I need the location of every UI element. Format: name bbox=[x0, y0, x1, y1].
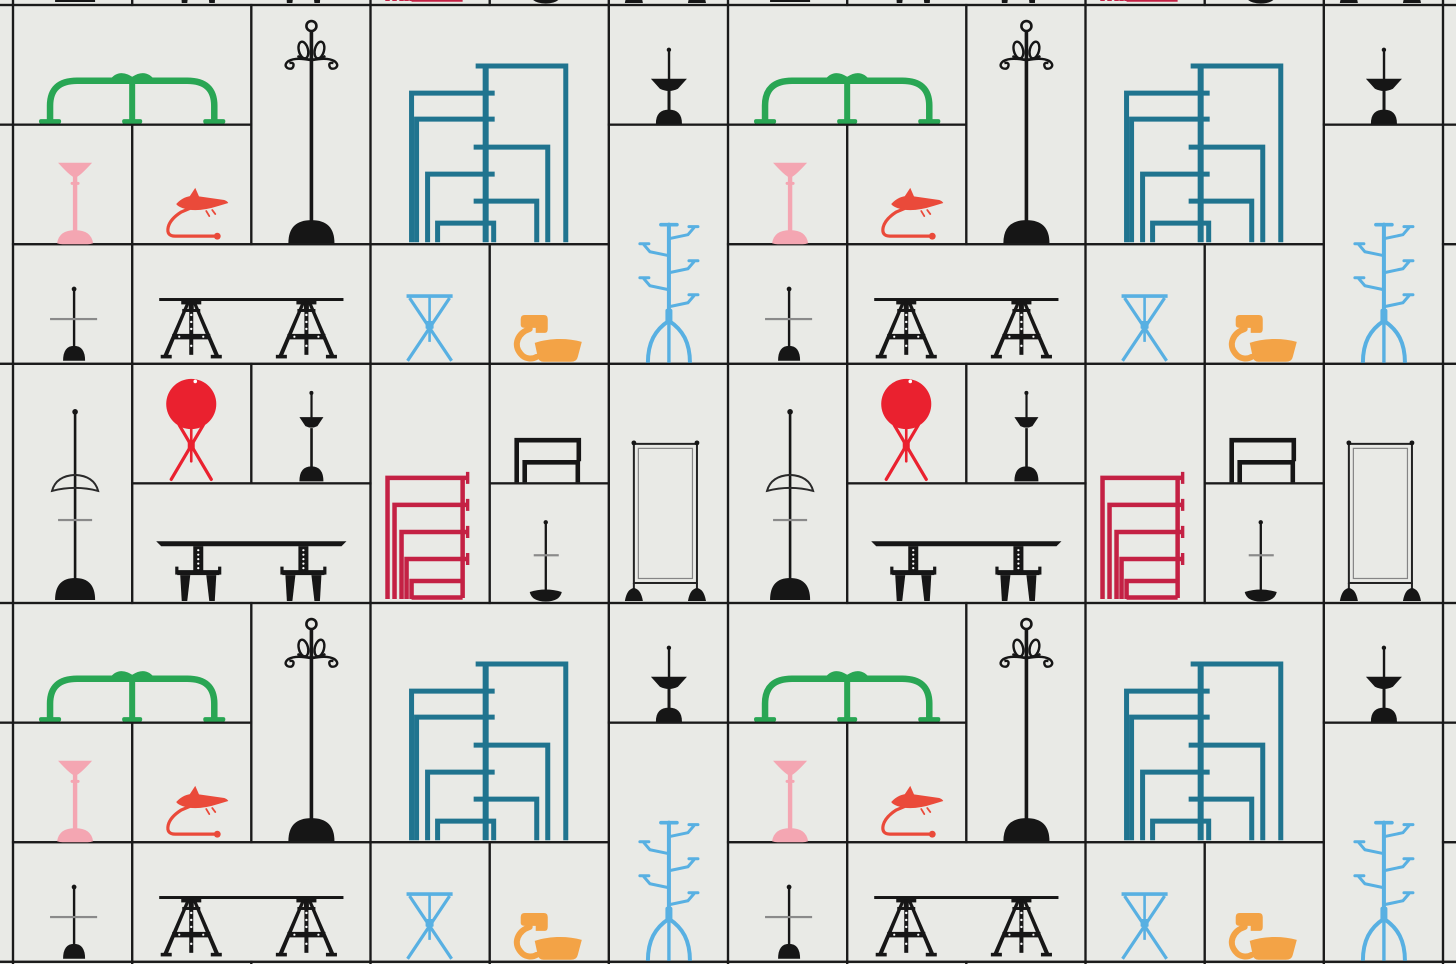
arch-console-cell bbox=[1443, 5, 1456, 125]
furniture-pattern-svg bbox=[0, 0, 1456, 964]
dining-table bbox=[156, 0, 346, 3]
dining-table bbox=[871, 541, 1061, 601]
shelving-tall-cell bbox=[1086, 5, 1324, 244]
arch-console bbox=[39, 671, 225, 722]
side-table-x bbox=[407, 296, 453, 361]
cross-floor-lamp-cell bbox=[728, 244, 847, 364]
shelving-tall bbox=[1127, 66, 1281, 242]
shelving-small bbox=[388, 472, 468, 599]
valet-stand bbox=[767, 0, 813, 2]
cross-lamp-bowl bbox=[1245, 520, 1277, 601]
shelving-tall-cell bbox=[371, 603, 609, 842]
cross-floor-lamp-cell bbox=[728, 842, 847, 962]
dining-table bbox=[871, 0, 1061, 3]
trestle-table bbox=[159, 298, 343, 358]
cross-floor-lamp bbox=[765, 287, 812, 361]
table-lamp-a bbox=[1366, 48, 1402, 124]
valet-stand bbox=[767, 409, 813, 600]
mirror-floor bbox=[1340, 0, 1421, 3]
table-lamp-a-cell bbox=[0, 603, 13, 723]
side-table-x bbox=[1122, 296, 1168, 361]
shelving-tall bbox=[412, 664, 566, 840]
floor-lamp-pink bbox=[57, 163, 93, 246]
desk-lamp-coral-cell bbox=[132, 723, 251, 843]
table-lamp-b bbox=[299, 391, 323, 481]
cross-floor-lamp bbox=[50, 885, 97, 959]
cross-floor-lamp-cell bbox=[13, 244, 132, 364]
cross-lamp-bowl-cell bbox=[1205, 483, 1324, 603]
table-lamp-b bbox=[1014, 391, 1038, 481]
arch-console bbox=[754, 73, 940, 124]
trestle-table bbox=[159, 896, 343, 956]
mirror-floor bbox=[625, 0, 706, 3]
desk-lamp-coral-cell bbox=[847, 125, 966, 245]
furniture-pattern-canvas bbox=[0, 0, 1456, 964]
trestle-table bbox=[874, 896, 1058, 956]
nesting-bench bbox=[517, 440, 579, 482]
desk-lamp-coral bbox=[883, 786, 943, 838]
nesting-bench bbox=[1232, 440, 1294, 482]
arch-console bbox=[39, 73, 225, 124]
cross-floor-lamp-cell bbox=[1443, 842, 1456, 962]
desk-lamp-coral bbox=[883, 188, 943, 240]
cross-lamp-bowl bbox=[530, 520, 562, 601]
coat-stand bbox=[286, 619, 338, 841]
coat-tree-blue bbox=[1355, 225, 1413, 363]
valet-stand-cell bbox=[1443, 364, 1456, 603]
cross-floor-lamp bbox=[765, 885, 812, 959]
valet-stand-cell bbox=[13, 364, 132, 603]
nesting-bench-cell bbox=[1205, 364, 1324, 484]
coat-stand bbox=[286, 21, 338, 243]
ball-lamp-red bbox=[881, 379, 931, 480]
table-lamp-a bbox=[1366, 646, 1402, 722]
floor-lamp-pink bbox=[57, 761, 93, 844]
shelving-tall-cell bbox=[371, 5, 609, 244]
floor-lamp-pink bbox=[772, 163, 808, 246]
shelving-small bbox=[1103, 472, 1183, 599]
arc-lamp-orange bbox=[517, 315, 582, 362]
coat-stand bbox=[1001, 21, 1053, 243]
valet-stand bbox=[52, 409, 98, 600]
cross-floor-lamp bbox=[50, 287, 97, 361]
nesting-bench-cell bbox=[490, 364, 609, 484]
valet-stand-cell bbox=[728, 364, 847, 603]
ball-lamp-red bbox=[166, 379, 216, 480]
arch-console bbox=[754, 671, 940, 722]
mirror-floor bbox=[625, 440, 706, 601]
coat-tree-blue-cell bbox=[0, 723, 13, 962]
cross-lamp-bowl bbox=[530, 0, 562, 4]
table-lamp-a-cell bbox=[0, 5, 13, 125]
shelving-tall bbox=[1127, 664, 1281, 840]
arc-lamp-orange bbox=[1232, 315, 1297, 362]
desk-lamp-coral bbox=[168, 786, 228, 838]
mirror-floor-cell bbox=[609, 364, 728, 603]
arc-lamp-orange bbox=[1232, 913, 1297, 960]
side-table-x bbox=[407, 894, 453, 959]
coat-tree-blue bbox=[640, 225, 698, 363]
mirror-floor bbox=[1340, 440, 1421, 601]
arch-console-cell bbox=[1443, 603, 1456, 723]
coat-tree-blue-cell bbox=[0, 125, 13, 364]
desk-lamp-coral-cell bbox=[847, 723, 966, 843]
shelving-tall-cell bbox=[1086, 603, 1324, 842]
mirror-floor-cell bbox=[1324, 364, 1443, 603]
table-lamp-a bbox=[651, 646, 687, 722]
coat-tree-blue bbox=[640, 823, 698, 961]
coat-stand bbox=[1001, 619, 1053, 841]
cross-floor-lamp-cell bbox=[1443, 244, 1456, 364]
shelving-small bbox=[388, 0, 468, 1]
arc-lamp-orange bbox=[517, 913, 582, 960]
floor-lamp-pink bbox=[772, 761, 808, 844]
floor-lamp-pink-cell bbox=[1443, 125, 1456, 245]
dining-table bbox=[156, 541, 346, 601]
mirror-floor-cell bbox=[0, 364, 13, 603]
desk-lamp-coral-cell bbox=[132, 125, 251, 245]
desk-lamp-coral bbox=[168, 188, 228, 240]
table-lamp-a bbox=[651, 48, 687, 124]
side-table-x bbox=[1122, 894, 1168, 959]
shelving-small bbox=[1103, 0, 1183, 1]
coat-tree-blue bbox=[1355, 823, 1413, 961]
cross-lamp-bowl-cell bbox=[490, 483, 609, 603]
cross-lamp-bowl bbox=[1245, 0, 1277, 4]
shelving-tall bbox=[412, 66, 566, 242]
cross-floor-lamp-cell bbox=[13, 842, 132, 962]
floor-lamp-pink-cell bbox=[1443, 723, 1456, 843]
trestle-table bbox=[874, 298, 1058, 358]
valet-stand bbox=[52, 0, 98, 2]
